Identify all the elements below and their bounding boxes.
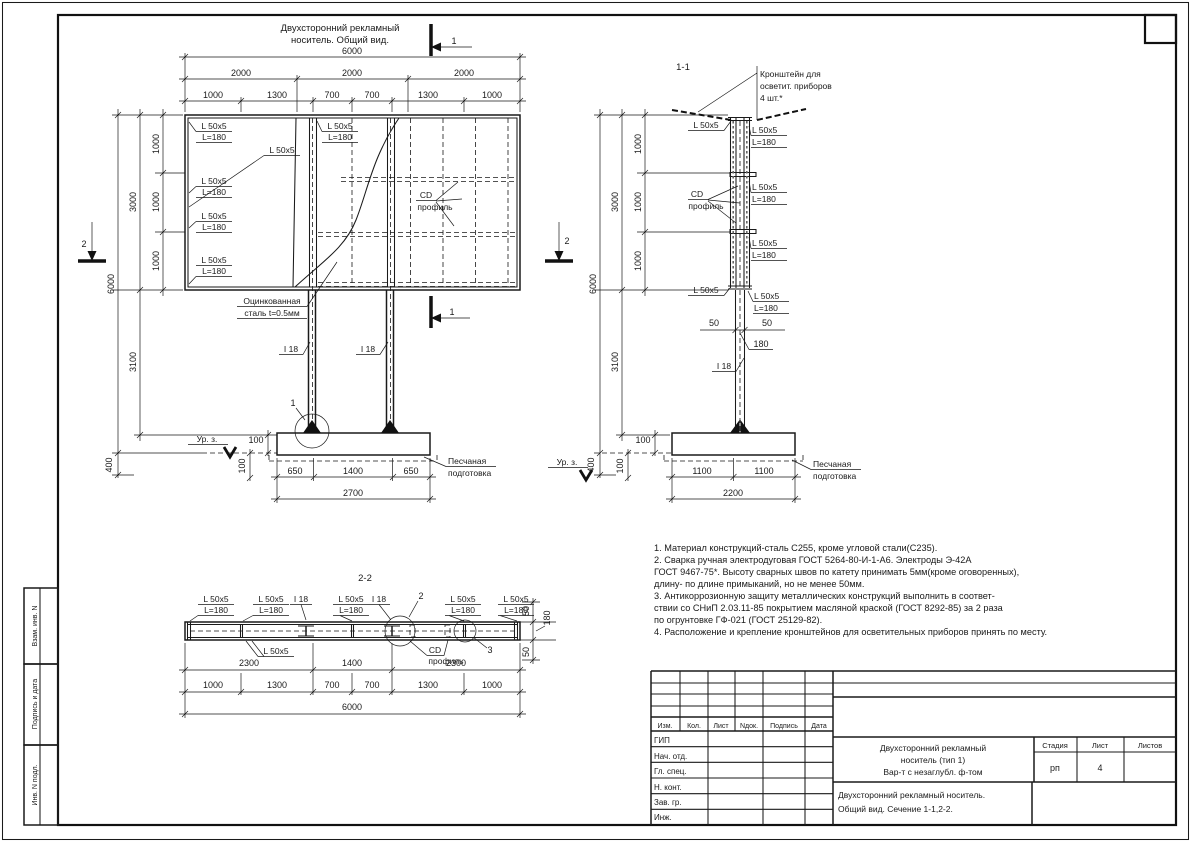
svg-text:I 18: I 18 xyxy=(372,594,386,604)
svg-text:L=180: L=180 xyxy=(451,605,475,615)
svg-text:400: 400 xyxy=(104,457,114,472)
svg-text:2000: 2000 xyxy=(342,68,362,78)
note-line: 4. Расположение и крепление кронштейнов … xyxy=(654,627,1047,637)
svg-text:700: 700 xyxy=(364,90,379,100)
detail-mark-1: 1 xyxy=(290,398,295,408)
svg-text:2700: 2700 xyxy=(343,488,363,498)
svg-text:L=180: L=180 xyxy=(328,132,352,142)
svg-text:L 50x5: L 50x5 xyxy=(338,594,363,604)
svg-text:6000: 6000 xyxy=(342,702,362,712)
role-nach-otd: Нач. отд. xyxy=(654,752,687,761)
svg-text:1400: 1400 xyxy=(343,466,363,476)
svg-text:1100: 1100 xyxy=(754,466,773,476)
svg-text:1100: 1100 xyxy=(692,466,711,476)
svg-text:сталь t=0.5мм: сталь t=0.5мм xyxy=(244,308,300,318)
svg-text:100: 100 xyxy=(237,458,247,473)
svg-text:2000: 2000 xyxy=(454,68,474,78)
svg-text:6000: 6000 xyxy=(588,274,598,294)
svg-text:L 50x5: L 50x5 xyxy=(269,145,294,155)
svg-text:1000: 1000 xyxy=(151,134,161,154)
sheet-number: 4 xyxy=(1097,763,1102,773)
svg-text:L=180: L=180 xyxy=(752,137,776,147)
svg-text:L 50x5: L 50x5 xyxy=(258,594,283,604)
svg-text:L 50x5: L 50x5 xyxy=(503,594,528,604)
svg-text:L 50x5: L 50x5 xyxy=(203,594,228,604)
svg-text:180: 180 xyxy=(542,610,552,625)
svg-text:L 50x5: L 50x5 xyxy=(754,291,779,301)
svg-text:1000: 1000 xyxy=(482,680,502,690)
front-view-title-line2: носитель. Общий вид. xyxy=(291,35,389,46)
sheet-header: Лист xyxy=(1092,741,1109,750)
svg-text:6000: 6000 xyxy=(106,274,116,294)
svg-text:1300: 1300 xyxy=(418,90,438,100)
col-ndok: Nдок. xyxy=(740,723,758,730)
svg-text:1000: 1000 xyxy=(482,90,502,100)
svg-text:700: 700 xyxy=(364,680,379,690)
svg-text:650: 650 xyxy=(403,466,418,476)
svg-text:2200: 2200 xyxy=(723,488,743,498)
svg-text:CD: CD xyxy=(429,645,441,655)
svg-text:L 50x5: L 50x5 xyxy=(450,594,475,604)
svg-text:L 50x5: L 50x5 xyxy=(263,646,288,656)
svg-text:L 50x5: L 50x5 xyxy=(693,285,718,295)
sheets-header: Листов xyxy=(1138,741,1162,750)
svg-text:1000: 1000 xyxy=(151,192,161,212)
svg-text:L 50x5: L 50x5 xyxy=(201,211,226,221)
detail-mark-2: 2 xyxy=(418,591,423,601)
svg-text:профиль: профиль xyxy=(428,656,464,666)
section-mark-1-top: 1 xyxy=(451,36,456,46)
svg-text:подготовка: подготовка xyxy=(813,471,857,481)
note-line: 1. Материал конструкций-сталь С255, кром… xyxy=(654,543,937,553)
svg-text:I 18: I 18 xyxy=(717,361,731,371)
svg-text:I 18: I 18 xyxy=(361,344,375,354)
svg-text:1000: 1000 xyxy=(633,251,643,271)
col-izm: Изм. xyxy=(658,723,673,730)
svg-text:L 50x5: L 50x5 xyxy=(752,182,777,192)
front-view-title-line1: Двухсторонний рекламный xyxy=(281,23,400,34)
svg-text:L=180: L=180 xyxy=(754,303,778,313)
svg-text:L=180: L=180 xyxy=(259,605,283,615)
svg-text:700: 700 xyxy=(324,680,339,690)
svg-text:CD: CD xyxy=(420,190,432,200)
svg-text:L 50x5: L 50x5 xyxy=(752,238,777,248)
svg-text:L=180: L=180 xyxy=(202,187,226,197)
col-podpis: Подпись xyxy=(770,723,798,730)
stage-header: Стадия xyxy=(1042,741,1068,750)
role-gip: ГИП xyxy=(654,736,670,745)
svg-text:50: 50 xyxy=(521,647,531,657)
doc-title-line1: Двухсторонний рекламный xyxy=(880,743,987,753)
svg-text:L=180: L=180 xyxy=(752,194,776,204)
doc-title-line3: Вар-т с незаглубл. ф-том xyxy=(883,767,982,777)
col-list: Лист xyxy=(713,723,729,730)
doc-title-line2: носитель (тип 1) xyxy=(901,755,966,765)
sidebar-label-inv: Инв. N подл. xyxy=(32,764,39,805)
svg-text:4 шт.*: 4 шт.* xyxy=(760,93,783,103)
note-line: 3. Антикоррозионную защиту металлических… xyxy=(654,591,995,601)
note-line: ГОСТ 9467-75*. Высоту сварных швов по ка… xyxy=(654,567,1019,577)
sidebar-label-podpis: Подпись и дата xyxy=(32,679,39,729)
svg-text:3100: 3100 xyxy=(610,352,620,372)
svg-text:L 50x5: L 50x5 xyxy=(693,120,718,130)
subtitle-line2: Общий вид. Сечение 1-1,2-2. xyxy=(838,804,953,814)
svg-text:1300: 1300 xyxy=(418,680,438,690)
subtitle-line1: Двухсторонний рекламный носитель. xyxy=(838,790,985,800)
sheet-background xyxy=(0,0,1191,842)
svg-text:700: 700 xyxy=(324,90,339,100)
svg-text:профиль: профиль xyxy=(417,202,453,212)
svg-text:100: 100 xyxy=(615,458,625,473)
sidebar-label-vzam: Взам. инв. N xyxy=(32,606,39,647)
note-line: длину- по длине примыканий, но не менее … xyxy=(654,579,864,589)
svg-text:2300: 2300 xyxy=(239,658,259,668)
section-mark-1-bottom: 1 xyxy=(449,307,454,317)
role-zav-gr: Зав. гр. xyxy=(654,798,682,807)
svg-text:180: 180 xyxy=(753,339,768,349)
blueprint-svg: Взам. инв. N Подпись и дата Инв. N подл.… xyxy=(0,0,1191,842)
svg-text:L=180: L=180 xyxy=(504,605,528,615)
svg-text:1000: 1000 xyxy=(633,134,643,154)
svg-text:L 50x5: L 50x5 xyxy=(752,125,777,135)
dim: 6000 xyxy=(342,46,362,56)
svg-text:Песчаная: Песчаная xyxy=(813,459,852,469)
svg-text:100: 100 xyxy=(635,435,650,445)
svg-text:L=180: L=180 xyxy=(202,266,226,276)
note-line: 2. Сварка ручная электродуговая ГОСТ 526… xyxy=(654,555,972,565)
note-line: ствии со СНиП 2.03.11-85 покрытием масля… xyxy=(654,603,1004,613)
svg-text:50: 50 xyxy=(762,318,772,328)
drawing-sheet: Взам. инв. N Подпись и дата Инв. N подл.… xyxy=(0,0,1191,842)
bracket-note: Кронштейн для xyxy=(760,69,821,79)
svg-text:Ур. з.: Ур. з. xyxy=(557,457,578,467)
svg-text:50: 50 xyxy=(709,318,719,328)
section-mark-2-right: 2 xyxy=(564,236,569,246)
svg-text:400: 400 xyxy=(586,457,596,472)
svg-text:L=180: L=180 xyxy=(339,605,363,615)
svg-text:L 50x5: L 50x5 xyxy=(327,121,352,131)
svg-text:L=180: L=180 xyxy=(202,132,226,142)
role-inzh: Инж. xyxy=(654,813,672,822)
svg-text:1000: 1000 xyxy=(203,90,223,100)
svg-text:3100: 3100 xyxy=(128,352,138,372)
svg-text:L=180: L=180 xyxy=(752,250,776,260)
stage-value: рп xyxy=(1050,763,1060,773)
svg-text:профиль: профиль xyxy=(688,201,724,211)
section-1-1-title: 1-1 xyxy=(676,62,690,73)
svg-text:100: 100 xyxy=(248,435,263,445)
ibeam-label: I 18 xyxy=(284,344,298,354)
svg-text:1000: 1000 xyxy=(203,680,223,690)
svg-text:L 50x5: L 50x5 xyxy=(201,255,226,265)
svg-text:I 18: I 18 xyxy=(294,594,308,604)
svg-text:3000: 3000 xyxy=(610,192,620,212)
ground-level-label: Ур. з. xyxy=(197,434,218,444)
note-line: по огрунтовке ГФ-021 (ГОСТ 25129-82). xyxy=(654,615,822,625)
role-n-kont: Н. конт. xyxy=(654,783,682,792)
svg-text:1000: 1000 xyxy=(151,251,161,271)
svg-text:1400: 1400 xyxy=(342,658,362,668)
svg-text:1300: 1300 xyxy=(267,90,287,100)
zinc-steel-label: Оцинкованная xyxy=(243,296,301,306)
svg-text:осветит. приборов: осветит. приборов xyxy=(760,81,832,91)
svg-text:подготовка: подготовка xyxy=(448,468,492,478)
col-kol: Кол. xyxy=(687,723,701,730)
svg-text:650: 650 xyxy=(287,466,302,476)
svg-text:CD: CD xyxy=(691,189,703,199)
detail-mark-3: 3 xyxy=(487,645,492,655)
svg-text:L=180: L=180 xyxy=(202,222,226,232)
svg-text:L=180: L=180 xyxy=(204,605,228,615)
sand-label: Песчаная xyxy=(448,456,487,466)
svg-text:2000: 2000 xyxy=(231,68,251,78)
svg-text:1300: 1300 xyxy=(267,680,287,690)
section-2-2-title: 2-2 xyxy=(358,573,372,584)
role-gl-spec: Гл. спец. xyxy=(654,767,687,776)
section-mark-2-left: 2 xyxy=(81,239,86,249)
col-data: Дата xyxy=(811,723,827,730)
svg-text:1000: 1000 xyxy=(633,192,643,212)
svg-text:3000: 3000 xyxy=(128,192,138,212)
svg-text:L 50x5: L 50x5 xyxy=(201,121,226,131)
svg-text:L 50x5: L 50x5 xyxy=(201,176,226,186)
